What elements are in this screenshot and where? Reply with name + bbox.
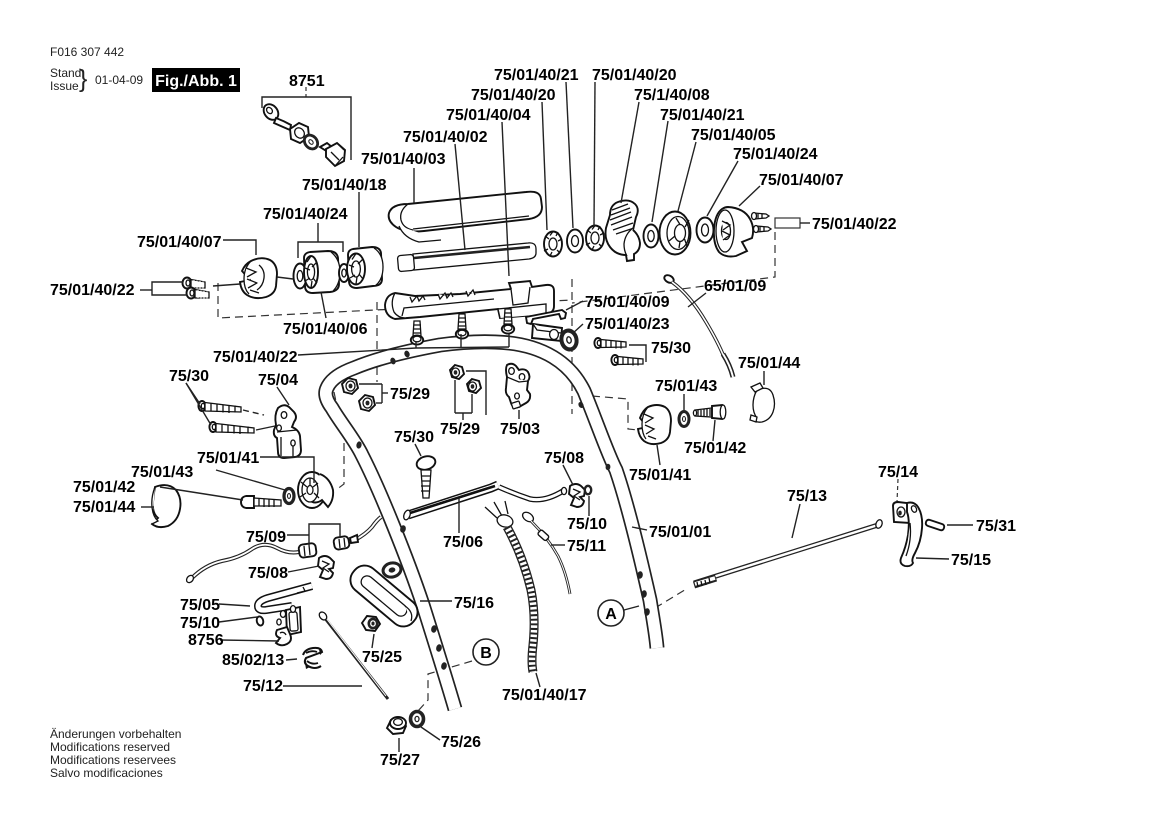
svg-text:Issue: Issue xyxy=(50,79,79,93)
svg-text:75/30: 75/30 xyxy=(394,429,434,446)
svg-text:75/08: 75/08 xyxy=(248,565,288,582)
svg-text:75/01/41: 75/01/41 xyxy=(197,450,259,467)
svg-text:75/01/40/09: 75/01/40/09 xyxy=(585,294,670,311)
svg-text:8751: 8751 xyxy=(289,73,325,90)
svg-text:75/14: 75/14 xyxy=(878,464,918,481)
svg-text:75/1/40/08: 75/1/40/08 xyxy=(634,87,710,104)
svg-text:75/12: 75/12 xyxy=(243,678,283,695)
svg-text:75/01/42: 75/01/42 xyxy=(684,440,746,457)
svg-text:75/01/01: 75/01/01 xyxy=(649,524,711,541)
svg-text:75/01/40/20: 75/01/40/20 xyxy=(471,87,556,104)
svg-text:75/01/40/22: 75/01/40/22 xyxy=(50,282,135,299)
svg-text:75/01/40/02: 75/01/40/02 xyxy=(403,129,488,146)
svg-text:75/01/41: 75/01/41 xyxy=(629,467,691,484)
svg-text:}: } xyxy=(79,65,87,93)
svg-text:75/01/40/23: 75/01/40/23 xyxy=(585,316,670,333)
svg-text:75/16: 75/16 xyxy=(454,595,494,612)
svg-text:B: B xyxy=(480,645,492,662)
svg-text:75/29: 75/29 xyxy=(440,421,480,438)
svg-text:75/01/40/04: 75/01/40/04 xyxy=(446,107,531,124)
svg-text:75/10: 75/10 xyxy=(180,615,220,632)
svg-text:75/09: 75/09 xyxy=(246,529,286,546)
svg-text:Modifications reserved: Modifications reserved xyxy=(50,740,170,754)
svg-text:75/10: 75/10 xyxy=(567,516,607,533)
svg-text:75/30: 75/30 xyxy=(651,340,691,357)
svg-text:75/01/43: 75/01/43 xyxy=(655,378,717,395)
svg-text:75/01/40/22: 75/01/40/22 xyxy=(812,216,897,233)
svg-text:75/03: 75/03 xyxy=(500,421,540,438)
svg-text:75/04: 75/04 xyxy=(258,372,298,389)
svg-text:A: A xyxy=(605,606,617,623)
svg-text:75/27: 75/27 xyxy=(380,752,420,769)
svg-text:75/31: 75/31 xyxy=(976,518,1016,535)
svg-text:85/02/13: 85/02/13 xyxy=(222,652,284,669)
svg-text:75/01/42: 75/01/42 xyxy=(73,479,135,496)
svg-text:Salvo modificaciones: Salvo modificaciones xyxy=(50,766,163,780)
svg-text:75/01/40/03: 75/01/40/03 xyxy=(361,151,446,168)
svg-text:75/01/40/24: 75/01/40/24 xyxy=(733,146,818,163)
svg-text:Fig./Abb. 1: Fig./Abb. 1 xyxy=(155,73,237,90)
svg-text:75/05: 75/05 xyxy=(180,597,220,614)
svg-text:75/01/44: 75/01/44 xyxy=(73,499,135,516)
svg-text:75/15: 75/15 xyxy=(951,552,991,569)
svg-text:75/30: 75/30 xyxy=(169,368,209,385)
svg-text:75/01/40/06: 75/01/40/06 xyxy=(283,321,368,338)
svg-text:75/06: 75/06 xyxy=(443,534,483,551)
svg-text:75/25: 75/25 xyxy=(362,649,402,666)
svg-text:75/01/40/17: 75/01/40/17 xyxy=(502,687,587,704)
svg-text:75/29: 75/29 xyxy=(390,386,430,403)
svg-text:75/13: 75/13 xyxy=(787,488,827,505)
svg-text:75/01/40/07: 75/01/40/07 xyxy=(137,234,222,251)
svg-text:01-04-09: 01-04-09 xyxy=(95,73,143,87)
svg-text:75/01/40/22: 75/01/40/22 xyxy=(213,349,298,366)
svg-text:75/01/40/24: 75/01/40/24 xyxy=(263,206,348,223)
svg-text:65/01/09: 65/01/09 xyxy=(704,278,766,295)
svg-text:75/01/40/18: 75/01/40/18 xyxy=(302,177,387,194)
svg-text:Änderungen vorbehalten: Änderungen vorbehalten xyxy=(50,727,181,741)
svg-text:75/11: 75/11 xyxy=(567,538,606,555)
svg-text:F016 307 442: F016 307 442 xyxy=(50,45,124,59)
svg-text:75/01/40/21: 75/01/40/21 xyxy=(494,67,579,84)
svg-text:75/01/40/21: 75/01/40/21 xyxy=(660,107,745,124)
svg-text:Stand: Stand xyxy=(50,66,81,80)
svg-text:75/01/40/05: 75/01/40/05 xyxy=(691,127,776,144)
svg-text:75/26: 75/26 xyxy=(441,734,481,751)
svg-text:Modifications reservees: Modifications reservees xyxy=(50,753,176,767)
svg-text:75/08: 75/08 xyxy=(544,450,584,467)
svg-text:75/01/40/07: 75/01/40/07 xyxy=(759,172,844,189)
svg-text:75/01/40/20: 75/01/40/20 xyxy=(592,67,677,84)
svg-text:75/01/44: 75/01/44 xyxy=(738,355,800,372)
svg-text:8756: 8756 xyxy=(188,632,224,649)
svg-text:75/01/43: 75/01/43 xyxy=(131,464,193,481)
